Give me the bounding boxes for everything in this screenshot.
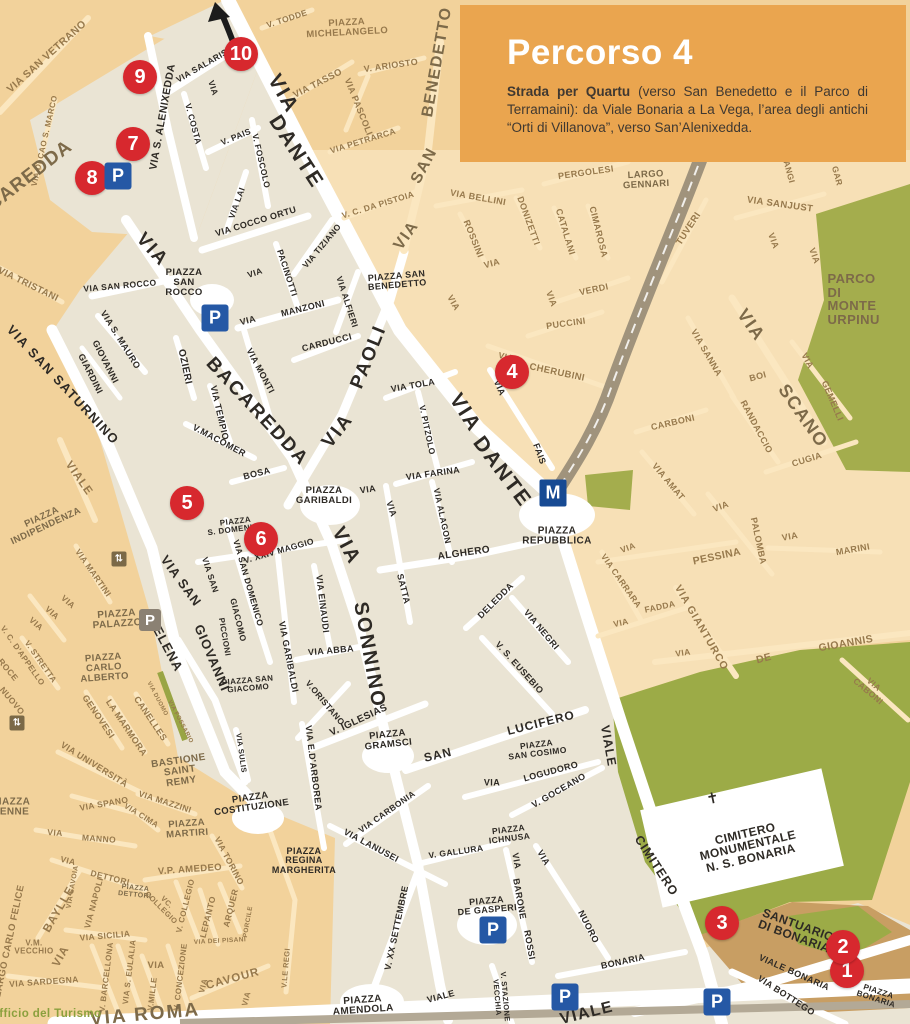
elevator-icon: ⇅ — [10, 716, 25, 731]
route-title: Percorso 4 — [507, 33, 868, 73]
route-description-bold: Strada per Quartu — [507, 84, 630, 99]
city-route-map: VIA SAN VETRANOVIA DI CAO S. MARCOCAREDD… — [0, 0, 910, 1024]
parking-icon: P — [105, 163, 132, 190]
parking-icon: P — [704, 989, 731, 1016]
route-marker-9: 9 — [123, 60, 157, 94]
route-marker-3: 3 — [705, 906, 739, 940]
route-description: Strada per Quartu (verso San Benedetto e… — [507, 83, 868, 136]
route-marker-10: 10 — [224, 37, 258, 71]
route-marker-2: 2 — [826, 930, 860, 964]
elevator-icon: ⇅ — [112, 552, 127, 567]
route-marker-6: 6 — [244, 522, 278, 556]
parking-icon: P — [552, 984, 579, 1011]
route-marker-4: 4 — [495, 355, 529, 389]
parking-icon: P — [139, 609, 161, 631]
small-park — [585, 470, 633, 510]
route-marker-7: 7 — [116, 127, 150, 161]
parking-icon: P — [480, 917, 507, 944]
route-header-panel: Percorso 4 Strada per Quartu (verso San … — [460, 5, 906, 162]
route-marker-5: 5 — [170, 486, 204, 520]
parking-icon: P — [202, 305, 229, 332]
metro-station-icon: M — [540, 480, 567, 507]
